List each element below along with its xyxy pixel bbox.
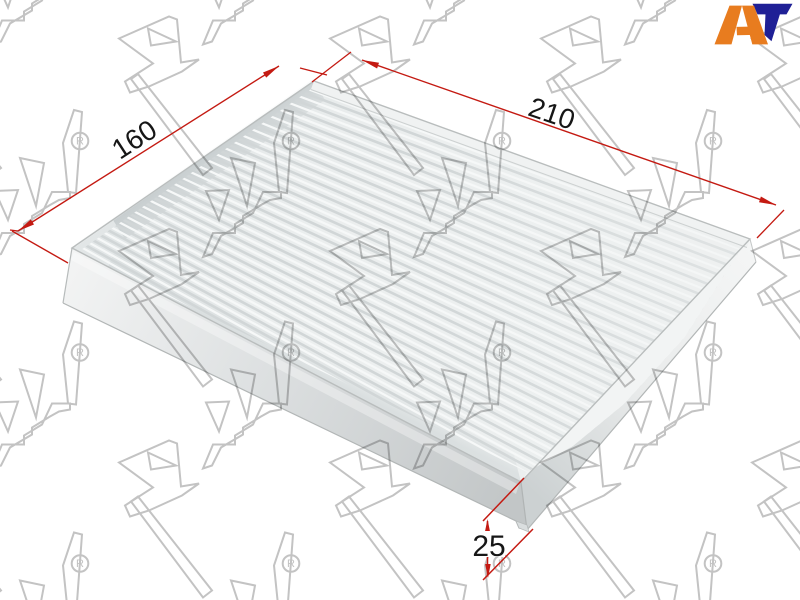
svg-text:25: 25 bbox=[472, 530, 505, 563]
